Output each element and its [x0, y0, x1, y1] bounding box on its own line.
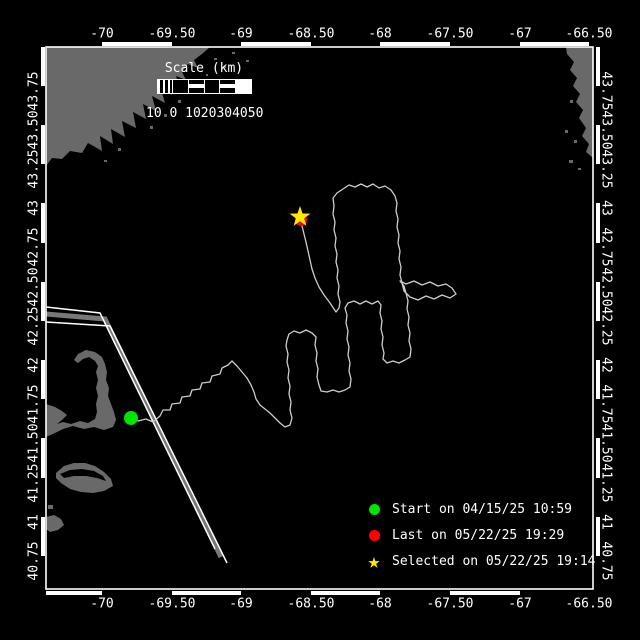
lat-label-left: 41.75: [27, 384, 42, 423]
lon-label-top: -68.50: [288, 27, 335, 42]
border-tick-segment: [102, 42, 172, 46]
border-tick-segment: [450, 591, 520, 595]
lat-label-left: 43: [27, 200, 42, 216]
border-tick-segment: [41, 203, 45, 243]
land-polygon: [46, 350, 116, 437]
lat-label-left: 42.50: [27, 267, 42, 306]
scale-bar-title: Scale (km): [146, 61, 262, 76]
lat-label-right: 42.25: [599, 306, 614, 345]
lon-label-bottom: -67: [508, 597, 531, 612]
scale-bar-segment: [172, 80, 188, 93]
scale-bar-graphic: [157, 79, 252, 94]
lat-label-left: 43.75: [27, 71, 42, 110]
legend-item: Start on 04/15/25 10:59: [362, 496, 596, 522]
border-tick-segment: [41, 438, 45, 478]
shipping-lane-edge: [46, 322, 227, 563]
lat-label-left: 41.50: [27, 423, 42, 462]
lat-label-left: 43.50: [27, 110, 42, 149]
legend: Start on 04/15/25 10:59Last on 05/22/25 …: [362, 496, 596, 574]
lon-label-bottom: -69.50: [149, 597, 196, 612]
lat-label-right: 42: [599, 357, 614, 373]
lon-label-bottom: -68.50: [288, 597, 335, 612]
islet-speck: [214, 58, 217, 60]
land-polygon: [46, 515, 64, 532]
shipping-lane-center: [46, 314, 221, 557]
lon-label-bottom: -66.50: [566, 597, 613, 612]
border-tick-segment: [172, 591, 241, 595]
lat-label-right: 41.75: [599, 384, 614, 423]
lat-label-left: 42: [27, 357, 42, 373]
islet-speck: [232, 52, 235, 54]
lat-label-left: 41.25: [27, 463, 42, 502]
legend-label: Selected on 05/22/25 19:14: [392, 554, 596, 569]
track-map-view: -70-69.50-69-68.50-68-67.50-67-66.50 -70…: [0, 0, 640, 640]
islet-speck: [569, 160, 573, 163]
border-tick-segment: [41, 517, 45, 556]
lat-label-right: 43: [599, 200, 614, 216]
lat-label-left: 42.25: [27, 306, 42, 345]
islet-speck: [118, 148, 121, 151]
scale-bar-segment-hatched: [158, 80, 173, 93]
lon-label-top: -66.50: [566, 27, 613, 42]
islet-speck: [570, 100, 573, 103]
lon-label-top: -69.50: [149, 27, 196, 42]
border-tick-segment: [41, 125, 45, 164]
lat-label-left: 42.75: [27, 227, 42, 266]
legend-label: Start on 04/15/25 10:59: [392, 502, 572, 517]
lat-label-right: 42.50: [599, 267, 614, 306]
lon-label-top: -69: [229, 27, 252, 42]
lon-label-top: -68: [368, 27, 391, 42]
scale-bar-segment: [235, 80, 251, 93]
border-tick-segment: [380, 42, 450, 46]
lon-label-bottom: -68: [368, 597, 391, 612]
dot-icon: [362, 530, 386, 541]
islet-speck: [48, 505, 53, 509]
islet-speck: [578, 168, 581, 170]
lat-label-right: 43.25: [599, 149, 614, 188]
star-icon: ★: [362, 551, 386, 572]
border-tick-segment: [41, 47, 45, 86]
lat-label-right: 40.75: [599, 541, 614, 580]
border-tick-segment: [46, 591, 102, 595]
lon-label-top: -70: [90, 27, 113, 42]
border-tick-segment: [241, 42, 311, 46]
lat-label-left: 43.25: [27, 149, 42, 188]
lon-label-top: -67: [508, 27, 531, 42]
scale-bar-segment: [204, 80, 220, 93]
glider-track: [132, 184, 456, 427]
islet-speck: [150, 126, 153, 129]
map-content: [46, 47, 593, 563]
lon-label-top: -67.50: [427, 27, 474, 42]
lat-label-right: 43.50: [599, 110, 614, 149]
lat-label-right: 42.75: [599, 227, 614, 266]
lat-label-right: 41.25: [599, 463, 614, 502]
lon-label-bottom: -69: [229, 597, 252, 612]
legend-item: Last on 05/22/25 19:29: [362, 522, 596, 548]
legend-item: ★Selected on 05/22/25 19:14: [362, 548, 596, 574]
land-polygon: [56, 463, 113, 493]
start-position-marker[interactable]: [124, 411, 138, 425]
lat-label-left: 40.75: [27, 541, 42, 580]
scale-bar-tick-labels: 10 0 1020304050: [146, 106, 262, 121]
scale-bar-segment: [188, 80, 204, 93]
lon-label-bottom: -70: [90, 597, 113, 612]
border-tick-segment: [41, 282, 45, 321]
border-tick-segment: [41, 360, 45, 399]
lat-label-right: 41.50: [599, 423, 614, 462]
lat-label-right: 41: [599, 514, 614, 530]
border-tick-segment: [311, 591, 380, 595]
dot-icon: [362, 504, 386, 515]
scale-bar: Scale (km) 10 0 1020304050: [146, 61, 262, 121]
scale-bar-segment: [219, 80, 235, 93]
lon-label-bottom: -67.50: [427, 597, 474, 612]
islet-speck: [574, 140, 577, 143]
islet-speck: [104, 160, 107, 162]
islet-speck: [565, 130, 568, 133]
lat-label-left: 41: [27, 514, 42, 530]
lat-label-right: 43.75: [599, 71, 614, 110]
legend-label: Last on 05/22/25 19:29: [392, 528, 564, 543]
border-tick-segment: [520, 42, 589, 46]
shipping-lane-edge: [46, 307, 215, 549]
